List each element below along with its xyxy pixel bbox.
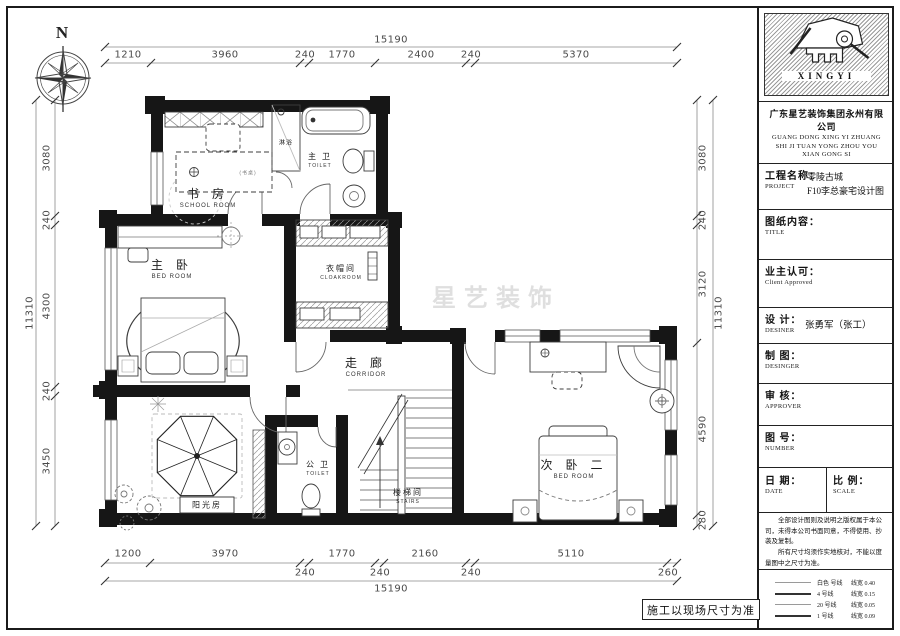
legend-line-sample [775, 604, 811, 605]
dim-top-seg: 240 [295, 50, 315, 61]
dim-top-seg: 1770 [328, 50, 355, 61]
legend-line-sample [775, 593, 811, 595]
dim-bottom-seg: 5110 [557, 549, 584, 560]
field-approver: 审 核： APPROVER [759, 384, 894, 426]
field-designer: 设 计： DESINER 张勇军（张工） [759, 308, 894, 344]
dim-top-total: 15190 [374, 35, 408, 46]
dim-bottom-seg: 3970 [211, 549, 238, 560]
dim-left-seg: 3080 [42, 144, 53, 171]
dim-top-seg: 1210 [114, 50, 141, 61]
room-label-sunroom: 阳光房 [192, 500, 222, 511]
dim-left-total: 11310 [25, 296, 36, 330]
dim-top-seg: 5370 [562, 50, 589, 61]
dim-right-seg: 3120 [698, 270, 709, 297]
dim-bottom-seg: 1200 [114, 549, 141, 560]
field-sheet-content: 图纸内容： TITLE [759, 210, 894, 260]
legend-line-sample [775, 582, 811, 583]
company-name-block: 广东星艺装饰集团永州有限公司 GUANG DONG XING YI ZHUANG… [759, 102, 894, 164]
legend-row: 1 号线 线宽 0.09 [775, 611, 888, 620]
field-draftsman: 制 图： DESINGER [759, 344, 894, 384]
room-label-study: 书 房SCHOOL ROOM [180, 185, 236, 209]
field-date-scale: 日 期： DATE 比 例： SCALE [759, 468, 894, 513]
dim-left-seg: 240 [42, 210, 53, 230]
dim-left-seg: 240 [42, 381, 53, 401]
field-drawing-number: 图 号： NUMBER [759, 426, 894, 468]
north-compass-icon [35, 46, 91, 112]
dim-bottom-seg: 1770 [328, 549, 355, 560]
dim-right-seg: 280 [698, 510, 709, 530]
room-label-master-bed: 主 卧BED ROOM [151, 256, 193, 280]
field-project: 工程名称： PROJECT 零陵古城 F10李总豪宅设计图 [759, 164, 894, 210]
legend-row: 白色 号线 线宽 0.40 [775, 578, 888, 587]
dim-right-seg: 4590 [698, 415, 709, 442]
room-label-shower: 淋浴 [279, 138, 293, 147]
dim-bottom-seg: 240 [295, 568, 315, 579]
field-client-approval: 业主认可： Client Approved [759, 260, 894, 308]
title-block: XINGYI 广东星艺装饰集团永州有限公司 GUANG DONG XING YI… [757, 8, 894, 628]
dim-bottom-seg: 260 [658, 568, 678, 579]
field-date: 日 期： DATE [759, 468, 826, 512]
dim-right-total: 11310 [714, 296, 725, 330]
copyright-notes: 全部设计图则及说明之版权属于本公司，未得本公司书面同意，不得使用、抄袭及复制。 … [759, 513, 894, 570]
drawing-sheet: N 星艺装饰 书 房SCHOOL ROOM (书桌) 淋浴 主 卫TOILET … [0, 0, 900, 636]
dim-left-seg: 3450 [42, 447, 53, 474]
logo-glyph-icon [765, 14, 888, 66]
company-name-en: SHI JI TUAN YONG ZHOU YOU [765, 143, 888, 150]
study-desk-note: (书桌) [239, 170, 256, 177]
dim-top-seg: 240 [461, 50, 481, 61]
company-name-en: GUANG DONG XING YI ZHUANG [765, 134, 888, 141]
dim-bottom-seg: 240 [370, 568, 390, 579]
lineweight-legend: 白色 号线 线宽 0.40 4 号线 线宽 0.15 20 号线 线宽 0.05… [759, 570, 894, 628]
dim-top-seg: 2400 [407, 50, 434, 61]
watermark: 星艺装饰 [432, 278, 560, 313]
dim-right-seg: 240 [698, 210, 709, 230]
legend-line-sample [775, 615, 811, 617]
room-label-bed2: 次 卧 二BED ROOM [540, 456, 607, 480]
logo-wordmark: XINGYI [782, 71, 871, 81]
company-logo: XINGYI [759, 8, 894, 102]
dim-bottom-seg: 240 [461, 568, 481, 579]
project-title: F10李总豪宅设计图 [807, 184, 884, 198]
company-name-en: XIAN GONG SI [765, 151, 888, 158]
room-label-cloakroom: 衣帽间CLOAKROOM [320, 263, 362, 281]
dim-bottom-seg: 2160 [411, 549, 438, 560]
field-scale: 比 例： SCALE [826, 468, 894, 512]
room-label-public-toilet: 公 卫TOILET [306, 459, 330, 477]
dim-left-seg: 4300 [42, 292, 53, 319]
room-label-stairs: 楼梯间STAIRS [393, 487, 423, 505]
dim-bottom-total: 15190 [374, 584, 408, 595]
company-name-cn: 广东星艺装饰集团永州有限公司 [765, 107, 888, 133]
dim-top-seg: 3960 [211, 50, 238, 61]
legend-row: 4 号线 线宽 0.15 [775, 589, 888, 598]
room-label-master-toilet: 主 卫TOILET [308, 151, 332, 169]
dim-right-seg: 3080 [698, 144, 709, 171]
legend-row: 20 号线 线宽 0.05 [775, 600, 888, 609]
logo-hatch-panel: XINGYI [764, 13, 889, 96]
designer-name: 张勇军（张工） [805, 317, 872, 331]
site-measure-note: 施工以现场尺寸为准 [642, 599, 760, 620]
room-label-corridor: 走 廊CORRIDOR [345, 354, 387, 378]
compass-north-label: N [56, 23, 68, 43]
project-name: 零陵古城 [807, 170, 884, 184]
